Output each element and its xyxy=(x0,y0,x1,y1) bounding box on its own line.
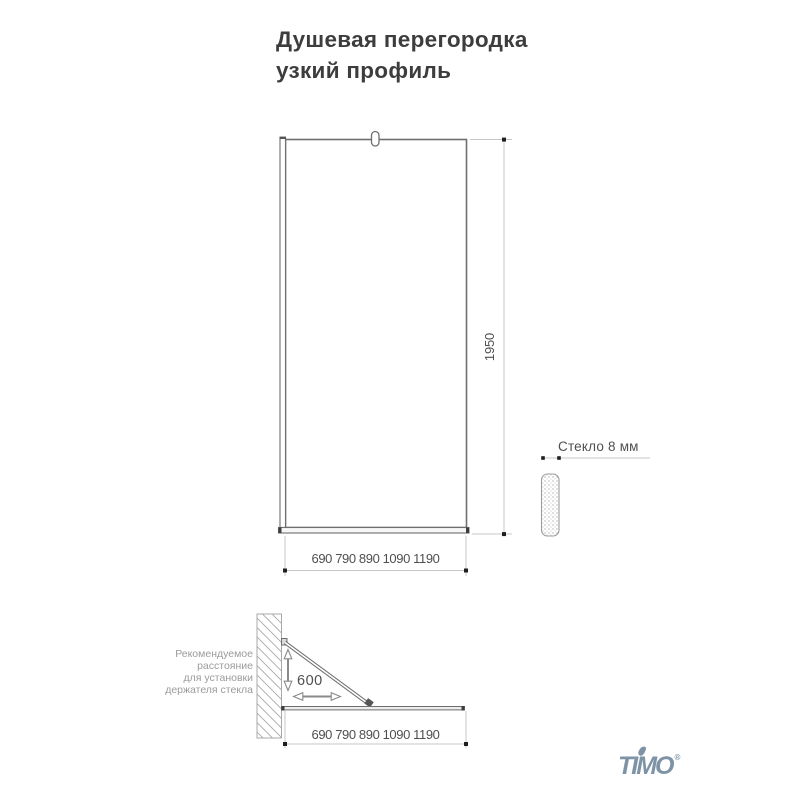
glass-section-view xyxy=(542,474,560,536)
holder-note: Рекомендуемое расстояние для установки д… xyxy=(165,648,253,696)
page-title-line1: Душевая перегородка xyxy=(276,24,528,55)
holder-note-line: расстояние xyxy=(165,660,253,672)
top-view-glass xyxy=(282,707,465,710)
brand-logo-text: TIMO xyxy=(618,752,673,780)
holder-note-line: для установки xyxy=(165,672,253,684)
glass-section-detail xyxy=(541,456,650,536)
technical-drawing xyxy=(0,0,800,800)
holder-note-line: держателя стекла xyxy=(165,684,253,696)
page-title: Душевая перегородка узкий профиль xyxy=(276,24,528,86)
page-title-line2: узкий профиль xyxy=(276,55,528,86)
glass-holder-clip xyxy=(372,132,380,147)
brand-logo-registered: ® xyxy=(675,753,681,762)
bottom-profile-cap-left xyxy=(279,528,282,534)
glass-thickness-label: Стекло 8 мм xyxy=(558,439,639,454)
front-view xyxy=(279,132,513,577)
wall-section-hatched xyxy=(257,614,282,738)
height-dimension-label: 1950 xyxy=(482,327,496,367)
top-width-dimension-label: 690 790 890 1090 1190 xyxy=(285,727,466,742)
diagram-page: Душевая перегородка узкий профиль 1950 6… xyxy=(0,0,800,800)
front-width-dimension-label: 690 790 890 1090 1190 xyxy=(285,551,466,566)
bottom-profile-cap-right xyxy=(466,528,469,534)
holder-note-line: Рекомендуемое xyxy=(165,648,253,660)
front-view-wall-profile xyxy=(280,138,286,528)
vertical-arrow-icon xyxy=(284,650,292,691)
horizontal-arrow-icon xyxy=(294,693,341,701)
wall-profile-cap xyxy=(280,137,286,139)
brand-logo: TIMO® xyxy=(618,752,680,781)
front-view-glass xyxy=(286,140,467,528)
holder-distance-label: 600 xyxy=(297,673,323,689)
bottom-profile xyxy=(279,528,470,534)
